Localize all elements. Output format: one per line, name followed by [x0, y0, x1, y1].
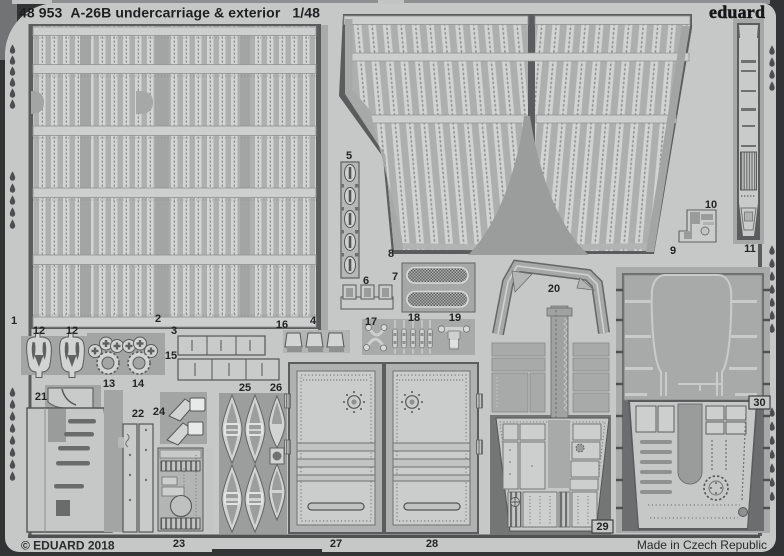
svg-text:14: 14 [132, 378, 145, 390]
svg-text:27: 27 [330, 538, 342, 550]
svg-text:5: 5 [346, 150, 352, 162]
svg-text:17: 17 [365, 316, 377, 328]
svg-text:12: 12 [33, 325, 45, 337]
svg-text:26: 26 [270, 382, 282, 394]
svg-text:11: 11 [744, 243, 756, 255]
svg-text:2: 2 [155, 313, 161, 325]
svg-text:48 953 A-26B undercarriage &: 48 953 A-26B undercarriage & exterior 1/… [19, 5, 320, 21]
svg-text:22: 22 [132, 408, 144, 420]
svg-text:Made in Czech Republic: Made in Czech Republic [637, 538, 767, 552]
svg-text:1: 1 [11, 315, 17, 327]
svg-text:29: 29 [596, 521, 608, 533]
svg-text:12: 12 [66, 325, 78, 337]
svg-text:21: 21 [35, 391, 47, 403]
svg-text:30: 30 [753, 397, 765, 409]
svg-text:20: 20 [548, 283, 560, 295]
svg-text:4: 4 [310, 315, 317, 327]
svg-text:7: 7 [392, 271, 398, 283]
svg-text:13: 13 [103, 378, 115, 390]
svg-text:© EDUARD 2018: © EDUARD 2018 [21, 539, 115, 553]
svg-text:9: 9 [670, 245, 676, 257]
svg-text:6: 6 [363, 275, 369, 287]
svg-text:10: 10 [705, 199, 717, 211]
svg-text:8: 8 [388, 248, 394, 260]
svg-text:19: 19 [449, 312, 461, 324]
svg-text:25: 25 [239, 382, 251, 394]
svg-text:18: 18 [408, 312, 420, 324]
svg-text:23: 23 [173, 538, 185, 550]
svg-text:24: 24 [153, 406, 166, 418]
svg-text:3: 3 [171, 325, 177, 337]
svg-text:28: 28 [426, 538, 438, 550]
svg-text:15: 15 [165, 350, 177, 362]
svg-text:16: 16 [276, 319, 288, 331]
